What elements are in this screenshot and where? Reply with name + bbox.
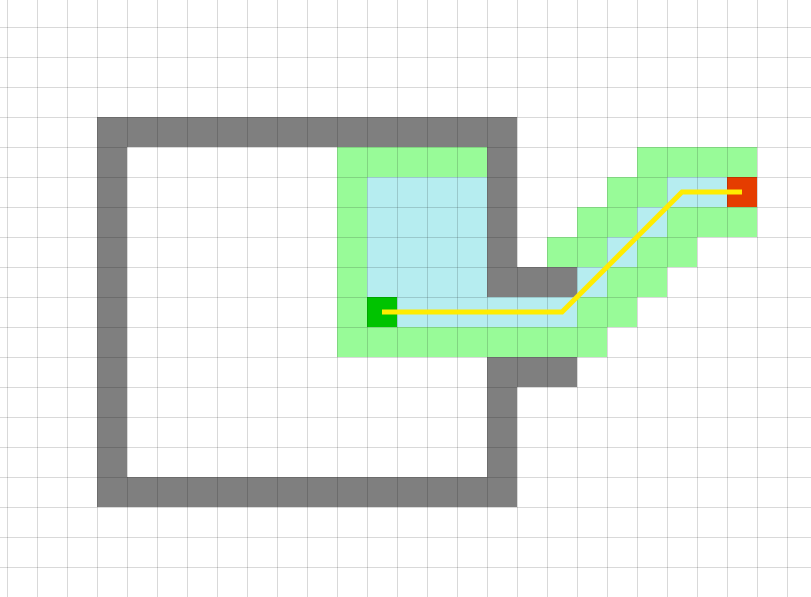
wall-cell[interactable] <box>277 117 307 147</box>
wall-cell[interactable] <box>217 117 247 147</box>
wall-cell[interactable] <box>517 357 547 387</box>
visited-cell <box>397 267 427 297</box>
visited-cell <box>457 267 487 297</box>
explored-cell <box>577 207 607 237</box>
explored-cell <box>457 327 487 357</box>
explored-cell <box>487 327 517 357</box>
explored-cell <box>427 147 457 177</box>
wall-cell[interactable] <box>127 477 157 507</box>
explored-cell <box>637 267 667 297</box>
wall-cell[interactable] <box>97 237 127 267</box>
explored-cell <box>727 207 757 237</box>
wall-cell[interactable] <box>337 477 367 507</box>
visited-cell <box>427 237 457 267</box>
explored-cell <box>607 267 637 297</box>
explored-cell <box>607 207 637 237</box>
wall-cell[interactable] <box>487 477 517 507</box>
wall-cell[interactable] <box>247 117 277 147</box>
explored-cell <box>577 327 607 357</box>
explored-cell <box>457 147 487 177</box>
explored-cell <box>337 177 367 207</box>
wall-cell[interactable] <box>547 267 577 297</box>
wall-cell[interactable] <box>367 477 397 507</box>
visited-cell <box>397 177 427 207</box>
wall-cell[interactable] <box>97 447 127 477</box>
wall-cell[interactable] <box>97 117 127 147</box>
wall-cell[interactable] <box>427 477 457 507</box>
explored-cell <box>667 207 697 237</box>
wall-cell[interactable] <box>487 237 517 267</box>
wall-cell[interactable] <box>487 447 517 477</box>
explored-cell <box>367 147 397 177</box>
wall-cell[interactable] <box>487 147 517 177</box>
wall-cell[interactable] <box>97 147 127 177</box>
wall-cell[interactable] <box>547 357 577 387</box>
wall-cell[interactable] <box>487 207 517 237</box>
wall-cell[interactable] <box>187 477 217 507</box>
visited-cell <box>457 237 487 267</box>
explored-cell <box>547 237 577 267</box>
visited-cell <box>457 207 487 237</box>
wall-cell[interactable] <box>307 477 337 507</box>
wall-cell[interactable] <box>97 267 127 297</box>
wall-cell[interactable] <box>487 387 517 417</box>
pathfinding-grid-canvas[interactable] <box>0 0 811 597</box>
grid-svg <box>0 0 811 597</box>
wall-cell[interactable] <box>97 207 127 237</box>
wall-cell[interactable] <box>487 117 517 147</box>
wall-cell[interactable] <box>457 477 487 507</box>
wall-cell[interactable] <box>157 117 187 147</box>
visited-cell <box>427 267 457 297</box>
explored-cell <box>697 207 727 237</box>
wall-cell[interactable] <box>337 117 367 147</box>
wall-cell[interactable] <box>427 117 457 147</box>
wall-cell[interactable] <box>397 477 427 507</box>
wall-cell[interactable] <box>97 417 127 447</box>
wall-cell[interactable] <box>277 477 307 507</box>
wall-cell[interactable] <box>97 387 127 417</box>
explored-cell <box>517 327 547 357</box>
visited-cell <box>427 207 457 237</box>
visited-cell <box>457 177 487 207</box>
explored-cell <box>397 327 427 357</box>
wall-cell[interactable] <box>127 117 157 147</box>
wall-cell[interactable] <box>217 477 247 507</box>
explored-cell <box>397 147 427 177</box>
explored-cell <box>337 147 367 177</box>
explored-cell <box>367 327 397 357</box>
explored-cell <box>607 177 637 207</box>
explored-cell <box>577 297 607 327</box>
visited-cell <box>397 207 427 237</box>
visited-cell <box>367 237 397 267</box>
wall-cell[interactable] <box>367 117 397 147</box>
wall-cell[interactable] <box>187 117 217 147</box>
wall-cell[interactable] <box>307 117 337 147</box>
wall-cell[interactable] <box>157 477 187 507</box>
explored-cell <box>607 297 637 327</box>
explored-cell <box>337 267 367 297</box>
visited-cell <box>367 177 397 207</box>
wall-cell[interactable] <box>97 477 127 507</box>
explored-cell <box>637 177 667 207</box>
wall-cell[interactable] <box>517 267 547 297</box>
wall-cell[interactable] <box>97 297 127 327</box>
explored-cell <box>637 147 667 177</box>
wall-cell[interactable] <box>487 417 517 447</box>
visited-cell <box>397 237 427 267</box>
explored-cell <box>667 237 697 267</box>
visited-cell <box>367 207 397 237</box>
explored-cell <box>727 147 757 177</box>
wall-cell[interactable] <box>487 357 517 387</box>
explored-cell <box>547 327 577 357</box>
wall-cell[interactable] <box>97 357 127 387</box>
explored-cell <box>337 237 367 267</box>
explored-cell <box>337 327 367 357</box>
wall-cell[interactable] <box>487 177 517 207</box>
wall-cell[interactable] <box>97 177 127 207</box>
wall-cell[interactable] <box>97 327 127 357</box>
wall-cell[interactable] <box>397 117 427 147</box>
explored-cell <box>337 297 367 327</box>
visited-cell <box>367 267 397 297</box>
explored-cell <box>697 147 727 177</box>
wall-cell[interactable] <box>487 267 517 297</box>
explored-cell <box>337 207 367 237</box>
explored-cell <box>427 327 457 357</box>
explored-cell <box>577 237 607 267</box>
explored-cell <box>667 147 697 177</box>
explored-cell <box>637 237 667 267</box>
wall-cell[interactable] <box>247 477 277 507</box>
wall-cell[interactable] <box>457 117 487 147</box>
visited-cell <box>427 177 457 207</box>
